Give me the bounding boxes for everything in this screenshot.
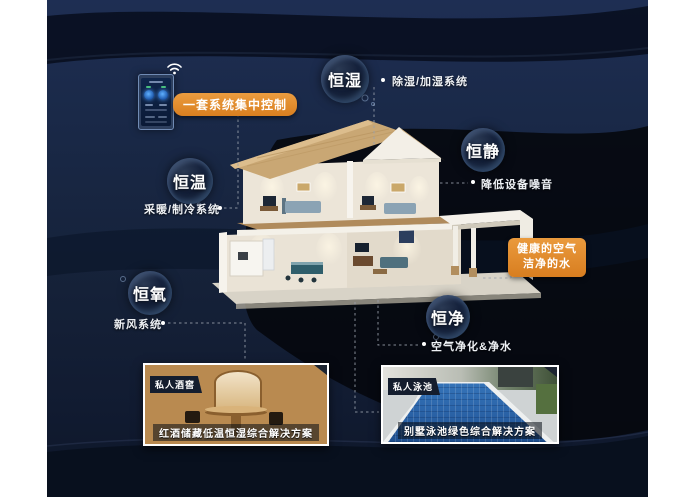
label-fresh-air-system: 新风系统 bbox=[114, 316, 162, 332]
bubble-humidity-label: 恒湿 bbox=[328, 67, 362, 91]
bubble-quiet-label: 恒静 bbox=[466, 138, 500, 162]
bubble-quiet: 恒静 bbox=[461, 128, 505, 172]
central-control-badge: 一套系统集中控制 bbox=[173, 93, 297, 116]
label-air-water-purification: 空气净化&净水 bbox=[431, 338, 512, 354]
panel-screen bbox=[141, 78, 171, 126]
label-heating-cooling-system: 采暖/制冷系统 bbox=[144, 201, 220, 217]
bubble-temperature-label: 恒温 bbox=[173, 169, 207, 193]
wine-cellar-caption: 红酒储藏低温恒湿综合解决方案 bbox=[153, 424, 319, 441]
bullet-dot-temperature bbox=[218, 206, 222, 210]
pool-card: 私人泳池 别墅泳池绿色综合解决方案 bbox=[381, 365, 559, 444]
bubble-oxygen-label: 恒氧 bbox=[133, 281, 167, 305]
label-noise-reduction: 降低设备噪音 bbox=[481, 176, 553, 192]
bubble-purity-label: 恒净 bbox=[431, 305, 465, 329]
bubble-purity: 恒净 bbox=[426, 295, 470, 339]
info-box-line1: 健康的空气 bbox=[517, 242, 577, 257]
bubble-oxygen: 恒氧 bbox=[128, 271, 172, 315]
info-box-line2: 洁净的水 bbox=[517, 257, 577, 272]
bullet-dot-oxygen bbox=[161, 321, 165, 325]
bubble-temperature: 恒温 bbox=[167, 158, 213, 204]
bullet-dot-humidity bbox=[381, 78, 385, 82]
wifi-icon bbox=[166, 61, 183, 75]
poster-page: 一套系统集中控制 健康的空气 洁净的水 恒湿 恒静 恒温 恒氧 恒净 除湿/加湿… bbox=[0, 0, 700, 497]
panel-knob-left bbox=[144, 90, 154, 100]
label-dehumidify-system: 除湿/加湿系统 bbox=[392, 73, 468, 89]
wine-cellar-card: 私人酒窖 红酒储藏低温恒湿综合解决方案 bbox=[143, 363, 329, 446]
wine-cellar-badge: 私人酒窖 bbox=[150, 376, 202, 393]
bullet-dot-quiet bbox=[471, 180, 475, 184]
bullet-dot-purity bbox=[422, 342, 426, 346]
bubble-humidity: 恒湿 bbox=[321, 55, 369, 103]
pool-caption: 别墅泳池绿色综合解决方案 bbox=[398, 422, 542, 439]
dark-canvas: 一套系统集中控制 健康的空气 洁净的水 恒湿 恒静 恒温 恒氧 恒净 除湿/加湿… bbox=[47, 0, 648, 497]
healthy-air-info-box: 健康的空气 洁净的水 bbox=[508, 238, 586, 277]
central-control-badge-label: 一套系统集中控制 bbox=[183, 98, 287, 112]
pool-badge: 私人泳池 bbox=[388, 378, 440, 395]
smart-control-panel bbox=[138, 74, 174, 130]
panel-knob-right bbox=[158, 90, 168, 100]
